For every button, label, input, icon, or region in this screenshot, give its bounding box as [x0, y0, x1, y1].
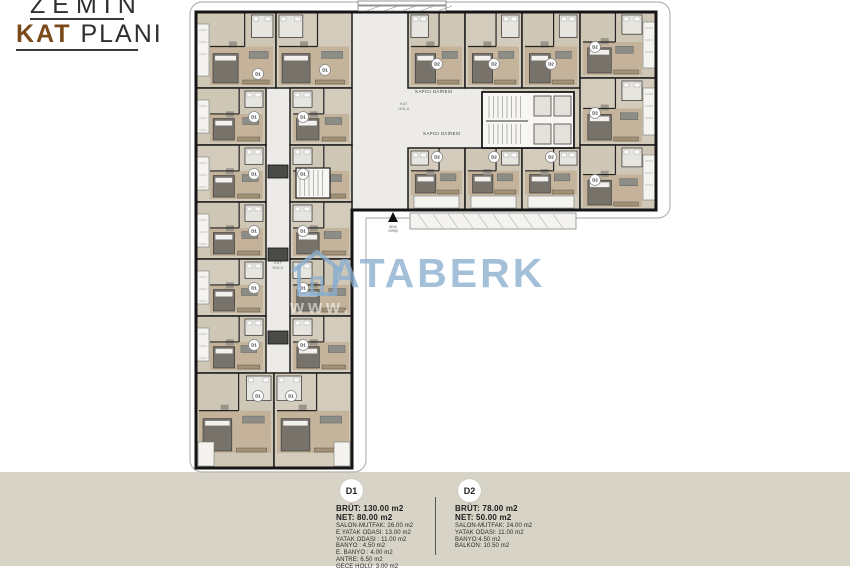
unit-badge: D2 — [590, 175, 601, 186]
unit-badge: D2 — [489, 59, 500, 70]
main-hall — [408, 88, 482, 148]
bathroom-fixture — [504, 17, 509, 21]
balcony — [643, 22, 655, 68]
bathroom-fixture — [504, 153, 509, 157]
bathroom-fixture — [413, 153, 418, 157]
apartment-unit — [408, 12, 465, 88]
furniture — [483, 169, 491, 175]
title-line1: ZEMİN — [30, 0, 124, 20]
wardrobe — [236, 448, 266, 452]
sofa — [243, 416, 265, 423]
bathroom-fixture — [561, 153, 566, 157]
bed-pillow — [215, 121, 232, 126]
furniture — [601, 171, 609, 177]
unit-badge: D1 — [249, 112, 260, 123]
wardrobe — [495, 80, 516, 84]
bathroom-fixture — [624, 83, 629, 87]
elevator — [554, 96, 571, 116]
unit-badge-label: D2 — [548, 62, 554, 67]
bathroom-fixture — [254, 17, 259, 21]
wardrobe — [614, 137, 639, 141]
legend-area-row: ANTRE: 6.50 m2 — [336, 557, 413, 564]
sofa — [249, 51, 268, 58]
unit-badge: D2 — [489, 152, 500, 163]
room-label-kapici: KAPICI DAİRESİ — [423, 131, 460, 136]
wardrobe — [238, 308, 260, 312]
bathroom-fixture — [295, 207, 300, 211]
bathroom-fixture — [304, 207, 310, 211]
stairwell-core — [482, 92, 574, 148]
sofa — [499, 51, 514, 58]
bed-pillow — [215, 56, 236, 61]
unit-badge: D2 — [546, 152, 557, 163]
legend-divider — [435, 497, 436, 555]
legend-area-row: YATAK ODASI: 11.00 m2 — [455, 530, 532, 537]
unit-badge-label: D1 — [255, 72, 261, 77]
unit-badge: D1 — [298, 340, 309, 351]
balcony — [197, 328, 209, 361]
bed-pillow — [284, 56, 308, 61]
wardrobe — [438, 190, 459, 194]
title-line2: KAT PLANI — [16, 20, 138, 51]
room-label-hall: KAT — [400, 102, 408, 106]
sofa — [324, 232, 341, 239]
wardrobe — [238, 194, 260, 198]
unit-badge: D1 — [249, 169, 260, 180]
unit-badge-label: D2 — [491, 62, 497, 67]
bathroom-fixture — [265, 17, 271, 21]
wardrobe — [322, 137, 346, 141]
furniture — [299, 405, 307, 411]
apartment-unit — [274, 373, 352, 468]
apartment-unit — [196, 12, 276, 88]
room-label-hall: KAT — [274, 261, 282, 265]
unit-badge-label: D1 — [251, 115, 257, 120]
bed-pillow — [215, 349, 232, 354]
bathroom-fixture — [634, 17, 640, 21]
unit-badge: D2 — [590, 108, 601, 119]
bed-pillow — [417, 177, 433, 182]
bathroom-fixture — [281, 17, 286, 21]
bathroom-fixture — [255, 93, 261, 97]
wardrobe — [438, 80, 459, 84]
balcony — [643, 155, 655, 200]
unit-badge-label: D1 — [251, 286, 257, 291]
legend-area-row: SALON-MUTFAK: 26.00 m2 — [336, 523, 413, 530]
unit-badge-label: D1 — [251, 229, 257, 234]
bathroom-fixture — [295, 321, 300, 325]
legend-area-row: SALON-MUTFAK: 24.00 m2 — [455, 523, 532, 530]
unit-badge-label: D1 — [300, 229, 306, 234]
bathroom-fixture — [413, 17, 418, 21]
unit-badge: D1 — [298, 169, 309, 180]
unit-badge: D1 — [249, 283, 260, 294]
balcony — [197, 271, 209, 304]
title-rest: PLANI — [72, 20, 163, 48]
unit-badge: D1 — [249, 340, 260, 351]
bathroom-fixture — [247, 207, 252, 211]
balcony — [471, 196, 516, 208]
balcony — [414, 196, 459, 208]
furniture — [601, 105, 609, 111]
unit-badge-label: D1 — [288, 394, 294, 399]
balcony — [197, 157, 209, 190]
wardrobe — [315, 80, 344, 84]
sofa — [554, 174, 570, 181]
balcony — [334, 442, 350, 466]
unit-badge-label: D1 — [322, 68, 328, 73]
unit-badge-label: D1 — [255, 394, 261, 399]
bed-pillow — [532, 177, 549, 182]
legend-area-row: BALKON: 10.50 m2 — [455, 543, 532, 550]
unit-badge-label: D2 — [434, 62, 440, 67]
bathroom-fixture — [420, 17, 426, 21]
apartment-unit — [465, 12, 522, 88]
sofa — [620, 113, 638, 120]
unit-badge-label: D1 — [300, 172, 306, 177]
legend-area-row: E. BANYO : 4.00 m2 — [336, 550, 413, 557]
wardrobe — [614, 70, 639, 74]
entrance-label: GİRİŞİ — [388, 228, 398, 233]
wardrobe — [322, 365, 346, 369]
bathroom-fixture — [511, 153, 517, 157]
furniture — [221, 405, 229, 411]
legend-area-row: YATAK ODASI : 11.00 m2 — [336, 537, 413, 544]
room-label-kapici: KAPICI DAİRESİ — [415, 89, 452, 94]
legend-area-bold: NET: 50.00 m2 — [455, 513, 532, 522]
apartment-unit — [196, 373, 274, 468]
shaft-block — [268, 248, 288, 261]
ramp-inner — [410, 213, 576, 229]
wardrobe — [322, 308, 346, 312]
unit-badge-label: D1 — [300, 286, 306, 291]
unit-badge-label: D1 — [300, 115, 306, 120]
legend-column: BRÜT: 78.00 m2NET: 50.00 m2SALON-MUTFAK:… — [455, 504, 532, 550]
wardrobe — [552, 80, 574, 84]
legend-area-bold: NET: 80.00 m2 — [336, 513, 413, 522]
wardrobe — [614, 202, 639, 206]
unit-badge: D2 — [432, 59, 443, 70]
ramp-strip — [358, 1, 446, 5]
balcony — [643, 88, 655, 135]
sofa — [620, 179, 638, 186]
legend-area-row: E.YATAK ODASI: 13.00 m2 — [336, 530, 413, 537]
unit-badge-label: D2 — [592, 178, 598, 183]
apartment-unit — [276, 12, 352, 88]
sofa — [616, 46, 634, 53]
balcony — [197, 100, 209, 133]
unit-badge: D1 — [298, 112, 309, 123]
balcony — [528, 196, 574, 208]
bathroom-fixture — [304, 93, 310, 97]
wardrobe — [238, 137, 260, 141]
bathroom-fixture — [624, 150, 629, 154]
bed-pillow — [215, 178, 232, 183]
elevator — [554, 124, 571, 144]
bathroom-fixture — [561, 17, 566, 21]
ramp-strip — [410, 213, 576, 229]
bathroom-fixture — [569, 153, 575, 157]
unit-badge-label: D2 — [548, 155, 554, 160]
bathroom-fixture — [247, 93, 252, 97]
page-title: ZEMİN KAT PLANI — [16, 0, 138, 51]
bathroom-fixture — [295, 17, 301, 21]
entrance-hall — [352, 12, 408, 210]
sofa — [325, 118, 342, 125]
unit-badge-label: D2 — [434, 155, 440, 160]
elevator — [534, 124, 551, 144]
bathroom-fixture — [249, 378, 254, 382]
bathroom-fixture — [634, 150, 640, 154]
ramp-top — [358, 1, 452, 11]
unit-badge-label: D1 — [300, 343, 306, 348]
unit-badge: D2 — [432, 152, 443, 163]
unit-badge: D2 — [590, 42, 601, 53]
bathroom-fixture — [295, 150, 300, 154]
elevator — [534, 96, 551, 116]
unit-badge: D1 — [249, 226, 260, 237]
bathroom-fixture — [624, 17, 629, 21]
bathroom-fixture — [247, 264, 252, 268]
bathroom-fixture — [255, 264, 261, 268]
bathroom-fixture — [255, 150, 261, 154]
bed-pillow — [531, 56, 548, 61]
unit-badge-label: D2 — [592, 111, 598, 116]
bed-pillow — [215, 235, 232, 240]
bed-pillow — [215, 292, 232, 297]
legend-area-row: GECE HOLÜ: 3.00 m2 — [336, 564, 413, 571]
unit-badge-label: D2 — [491, 155, 497, 160]
bathroom-fixture — [255, 321, 261, 325]
legend-area-row: BANYO : 4.50 m2 — [336, 543, 413, 550]
bathroom-fixture — [263, 378, 269, 382]
sofa — [441, 174, 456, 181]
legend-area-bold: BRÜT: 130.00 m2 — [336, 504, 413, 513]
legend-area-bold: BRÜT: 78.00 m2 — [455, 504, 532, 513]
unit-badge: D1 — [253, 69, 264, 80]
unit-badge-label: D1 — [251, 172, 257, 177]
bathroom-fixture — [255, 207, 261, 211]
bathroom-fixture — [304, 264, 310, 268]
title-accent: KAT — [16, 20, 72, 48]
room-label-hall: HOLÜ — [398, 107, 409, 111]
bed-pillow — [474, 56, 490, 61]
legend-column: BRÜT: 130.00 m2NET: 80.00 m2SALON-MUTFAK… — [336, 504, 413, 571]
floor-plan: BİNAGİRİŞİKAPICI DAİRESİKAPICI DAİRESİKA… — [0, 0, 850, 566]
bed-pillow — [417, 56, 433, 61]
entrance-arrow — [388, 212, 398, 222]
sofa — [497, 174, 512, 181]
bed-pillow — [283, 421, 308, 426]
sofa — [328, 346, 345, 353]
bathroom-fixture — [634, 83, 640, 87]
bathroom-fixture — [304, 321, 310, 325]
bathroom-fixture — [420, 153, 426, 157]
unit-badge: D1 — [253, 391, 264, 402]
furniture — [426, 169, 434, 175]
apartment-unit — [522, 12, 580, 88]
wardrobe — [243, 80, 269, 84]
unit-badge: D2 — [546, 59, 557, 70]
bathroom-fixture — [295, 264, 300, 268]
sofa — [329, 289, 346, 296]
page: { "title": { "line1": "ZEMİN", "line2_ac… — [0, 0, 850, 566]
unit-badge: D1 — [286, 391, 297, 402]
sofa — [442, 51, 457, 58]
shaft-block — [268, 331, 288, 344]
bathroom-fixture — [569, 17, 575, 21]
legend-badge: D2 — [458, 479, 481, 502]
sofa — [320, 416, 342, 423]
room-label-hall: HOLÜ — [272, 266, 283, 270]
bathroom-fixture — [304, 150, 310, 154]
bed-pillow — [475, 177, 491, 182]
bathroom-fixture — [295, 93, 300, 97]
unit-badge: D1 — [298, 283, 309, 294]
unit-badge: D1 — [320, 65, 331, 76]
sofa — [556, 51, 572, 58]
shaft-block — [268, 165, 288, 178]
wardrobe — [322, 251, 346, 255]
unit-badge-label: D1 — [251, 343, 257, 348]
balcony — [198, 442, 214, 466]
wardrobe — [238, 365, 260, 369]
bathroom-fixture — [511, 17, 517, 21]
unit-badge: D1 — [298, 226, 309, 237]
balcony — [197, 214, 209, 247]
bed-pillow — [205, 421, 230, 426]
bathroom-fixture — [247, 150, 252, 154]
bathroom-fixture — [279, 378, 284, 382]
bathroom-fixture — [293, 378, 299, 382]
legend-badge: D1 — [340, 479, 363, 502]
sofa — [322, 51, 343, 58]
bathroom-fixture — [247, 321, 252, 325]
balcony — [197, 24, 209, 76]
unit-badge-label: D2 — [592, 45, 598, 50]
furniture — [541, 169, 549, 175]
wardrobe — [552, 190, 574, 194]
wardrobe — [238, 251, 260, 255]
ramp-strip — [358, 6, 446, 11]
wardrobe — [495, 190, 516, 194]
legend-area-row: BANYO:4.50 m2 — [455, 537, 532, 544]
furniture — [601, 38, 609, 44]
